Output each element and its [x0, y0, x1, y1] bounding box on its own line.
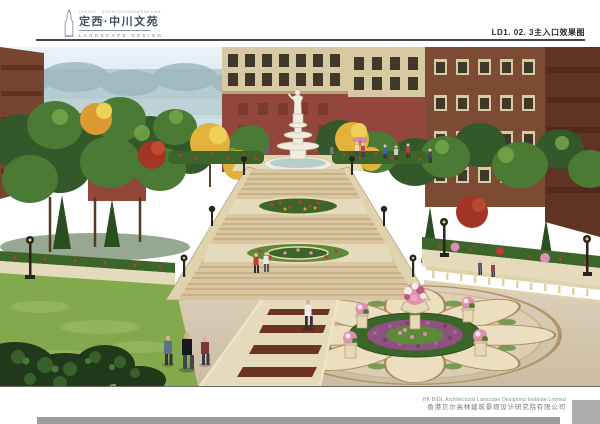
presentation-sheet: DINGXI · ZHONGCHUANWENYUAN 定西·中川文苑 LANDS… [0, 0, 600, 424]
company-name-en: HK BIGL Architectural Lanscape Designing… [423, 397, 566, 404]
tower-icon [62, 9, 76, 38]
logo-divider [79, 30, 151, 31]
company-name-zh: 香港贝尔高林建筑景观设计研究院有限公司 [423, 404, 566, 412]
footer-bar [37, 417, 560, 424]
header-rule [36, 39, 585, 41]
company-credit: HK BIGL Architectural Lanscape Designing… [423, 397, 566, 412]
grand-staircase [166, 167, 430, 300]
footer-corner-block [572, 400, 600, 424]
logo: DINGXI · ZHONGCHUANWENYUAN 定西·中川文苑 LANDS… [62, 9, 163, 38]
sheet-code: LD1. 02. 3主入口效果图 [492, 27, 585, 38]
entrance-rendering [0, 47, 600, 387]
project-title: 定西·中川文苑 [79, 15, 163, 29]
logo-subtitle: LANDSCAPE DESIGN [79, 33, 163, 38]
